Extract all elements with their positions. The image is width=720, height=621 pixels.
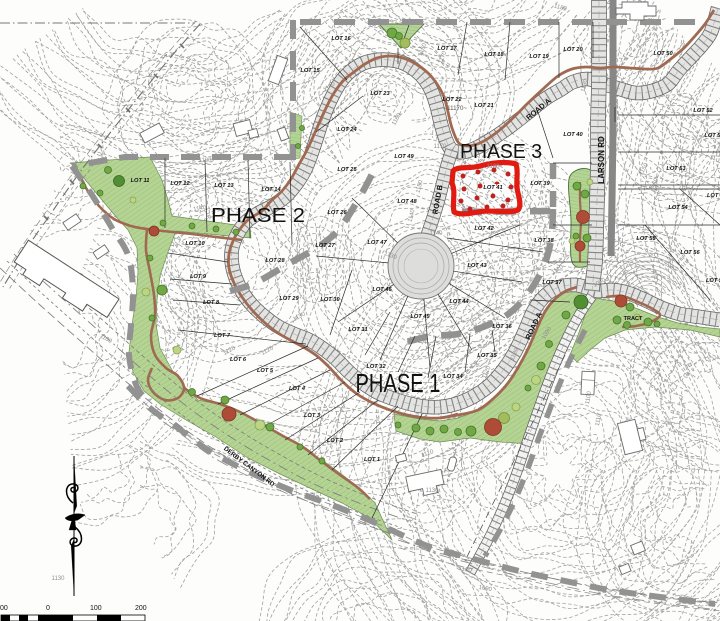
svg-text:LOT 18: LOT 18	[484, 52, 504, 58]
svg-text:LOT 5: LOT 5	[257, 368, 274, 374]
svg-text:LOT 51: LOT 51	[704, 133, 720, 139]
svg-text:1170: 1170	[434, 144, 448, 150]
svg-text:LOT 38: LOT 38	[534, 238, 554, 244]
svg-text:LOT 40: LOT 40	[563, 132, 583, 138]
svg-text:LOT 44: LOT 44	[449, 299, 469, 305]
svg-text:LOT 52: LOT 52	[693, 108, 713, 114]
svg-text:LOT 4: LOT 4	[289, 386, 306, 392]
svg-text:PHASE 2: PHASE 2	[211, 204, 305, 227]
svg-text:PHASE 3: PHASE 3	[460, 141, 542, 163]
svg-text:LARSON RD: LARSON RD	[597, 136, 606, 184]
svg-text:1130: 1130	[52, 576, 66, 582]
svg-text:LOT 12: LOT 12	[170, 181, 190, 187]
svg-text:LOT 49: LOT 49	[394, 154, 414, 160]
svg-text:LOT 48: LOT 48	[397, 199, 417, 205]
svg-text:1100: 1100	[199, 158, 213, 164]
svg-text:LOT 5: LOT 5	[707, 193, 720, 199]
svg-text:1140: 1140	[430, 231, 444, 237]
svg-text:LOT 37: LOT 37	[542, 280, 562, 286]
svg-text:LOT 19: LOT 19	[529, 54, 549, 60]
svg-text:LOT 36: LOT 36	[492, 324, 512, 330]
svg-text:LOT 45: LOT 45	[410, 314, 430, 320]
svg-text:00: 00	[0, 605, 8, 612]
svg-text:1100: 1100	[487, 164, 501, 170]
svg-text:LOT 13: LOT 13	[214, 183, 234, 189]
svg-text:LOT 23: LOT 23	[370, 91, 390, 97]
svg-text:LOT 21: LOT 21	[474, 103, 493, 109]
svg-text:LOT 50: LOT 50	[653, 51, 673, 57]
svg-text:LOT 28: LOT 28	[265, 258, 285, 264]
svg-text:LOT 31: LOT 31	[348, 327, 367, 333]
svg-text:LOT 56: LOT 56	[680, 250, 700, 256]
svg-text:200: 200	[135, 605, 147, 612]
svg-text:LOT 10: LOT 10	[185, 241, 205, 247]
svg-text:LOT 30: LOT 30	[320, 297, 340, 303]
svg-text:0: 0	[46, 605, 50, 612]
svg-text:LOT 8: LOT 8	[203, 300, 220, 306]
svg-text:LOT 53: LOT 53	[666, 166, 686, 172]
svg-text:LOT 20: LOT 20	[563, 47, 583, 53]
svg-text:LOT 7: LOT 7	[214, 333, 231, 339]
svg-text:LOT 27: LOT 27	[315, 243, 335, 249]
svg-text:LOT 42: LOT 42	[474, 226, 494, 232]
svg-text:LOT 35: LOT 35	[477, 353, 497, 359]
svg-text:LOT 47: LOT 47	[367, 240, 387, 246]
svg-text:LOT 55: LOT 55	[636, 236, 656, 242]
svg-text:LOT 54: LOT 54	[668, 205, 688, 211]
svg-text:LOT 15: LOT 15	[300, 68, 320, 74]
svg-text:LOT 1: LOT 1	[364, 457, 380, 463]
svg-text:--11170~: --11170~	[443, 105, 467, 112]
svg-text:LOT 22: LOT 22	[442, 97, 462, 103]
svg-text:100: 100	[90, 605, 102, 612]
svg-text:LOT 5: LOT 5	[706, 278, 720, 284]
svg-text:LOT 43: LOT 43	[467, 263, 487, 269]
svg-text:LOT 9: LOT 9	[190, 274, 207, 280]
svg-text:LOT 29: LOT 29	[279, 296, 299, 302]
svg-text:LOT 24: LOT 24	[337, 127, 357, 133]
svg-text:LOT 17: LOT 17	[437, 46, 457, 52]
svg-text:LOT 26: LOT 26	[327, 210, 347, 216]
svg-text:LOT 39: LOT 39	[530, 181, 550, 187]
svg-text:1130: 1130	[426, 488, 440, 494]
svg-text:PHASE 1: PHASE 1	[356, 368, 441, 398]
svg-text:LOT 14: LOT 14	[261, 187, 281, 193]
svg-text:LOT 3: LOT 3	[304, 413, 321, 419]
svg-text:LOT 6: LOT 6	[230, 357, 247, 363]
svg-text:LOT 11: LOT 11	[131, 178, 150, 184]
svg-text:LOT 25: LOT 25	[337, 167, 357, 173]
svg-text:LOT 34: LOT 34	[443, 374, 463, 380]
svg-text:LOT 2: LOT 2	[327, 438, 344, 444]
svg-text:LOT 41: LOT 41	[483, 185, 502, 191]
svg-text:TRACT: TRACT	[624, 316, 643, 322]
svg-text:LOT 16: LOT 16	[331, 36, 351, 42]
svg-text:LOT 46: LOT 46	[372, 287, 392, 293]
